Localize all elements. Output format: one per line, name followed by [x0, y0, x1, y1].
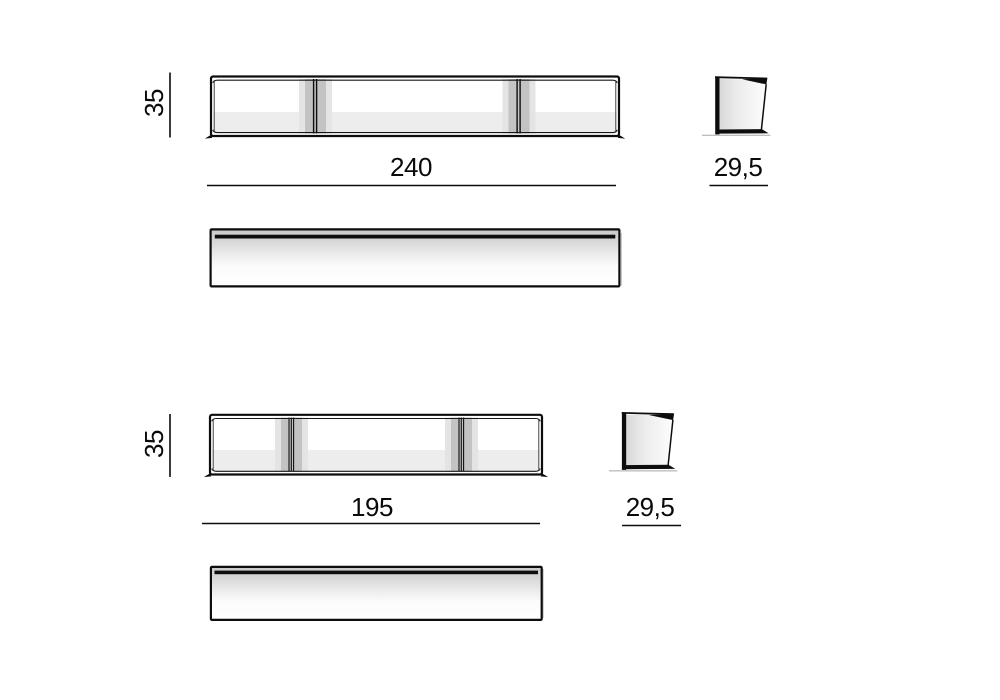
front-view-240 — [205, 77, 625, 139]
side-view-240 — [702, 77, 771, 135]
side-240-top-edge — [715, 77, 767, 78]
top-view-195 — [211, 567, 543, 620]
side-240-back-edge — [715, 78, 719, 135]
top-195-outline — [211, 567, 542, 620]
side-240-panel — [720, 79, 765, 130]
technical-drawing-canvas: 35 240 29,5 35 195 29,5 — [0, 0, 1000, 700]
top-view-240 — [211, 229, 622, 286]
front-view-195 — [204, 415, 548, 477]
front-195-divider-2 — [445, 418, 478, 472]
dim-label-width-240: 240 — [390, 154, 432, 180]
dim-label-height-195: 35 — [141, 430, 167, 458]
top-195-front-edge-line — [215, 571, 539, 575]
side-195-bottom-wedge — [625, 465, 675, 470]
side-195-back-edge — [622, 413, 626, 470]
dim-label-depth-195: 29,5 — [626, 494, 675, 520]
dim-label-width-195: 195 — [351, 494, 393, 520]
front-195-divider-1 — [275, 418, 308, 472]
side-195-top-edge — [622, 413, 674, 414]
dim-label-height-240: 35 — [141, 89, 167, 117]
top-240-front-edge-line — [215, 235, 616, 239]
front-240-divider-1 — [299, 79, 332, 134]
front-240-divider-2 — [503, 79, 536, 134]
side-240-bottom-wedge — [719, 129, 769, 134]
dim-label-depth-240: 29,5 — [714, 154, 763, 180]
side-view-195 — [609, 413, 677, 471]
side-195-panel — [626, 415, 671, 466]
front-240-interior-shade — [214, 112, 617, 133]
front-195-interior-shade — [213, 450, 540, 471]
